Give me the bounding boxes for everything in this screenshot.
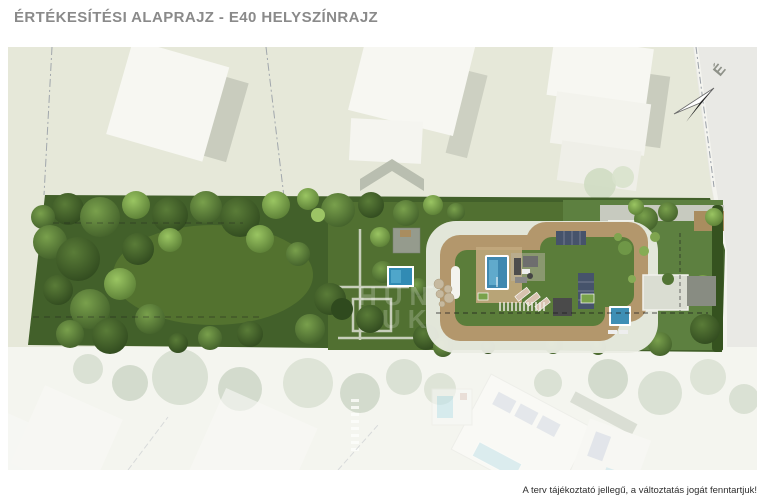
planter bbox=[478, 293, 488, 300]
brochure-page: ÉRTÉKESÍTÉSI ALAPRAJZ - E40 HELYSZÍNRAJZ bbox=[0, 0, 765, 500]
svg-text:UK: UK bbox=[382, 304, 434, 334]
disclaimer-text: A terv tájékoztató jellegű, a változtatá… bbox=[523, 485, 757, 496]
planter bbox=[581, 294, 594, 303]
site-plan-image: É bbox=[8, 47, 757, 470]
rooftop-pool bbox=[485, 255, 509, 290]
rooftop-lounge-furniture bbox=[511, 253, 545, 283]
pool-pavilion bbox=[393, 228, 420, 253]
faded-surroundings bbox=[8, 347, 757, 470]
site-plan-svg: É bbox=[8, 47, 757, 470]
page-title: ÉRTÉKESÍTÉSI ALAPRAJZ - E40 HELYSZÍNRAJZ bbox=[14, 9, 378, 26]
property-garden: HUN UK bbox=[28, 188, 725, 357]
